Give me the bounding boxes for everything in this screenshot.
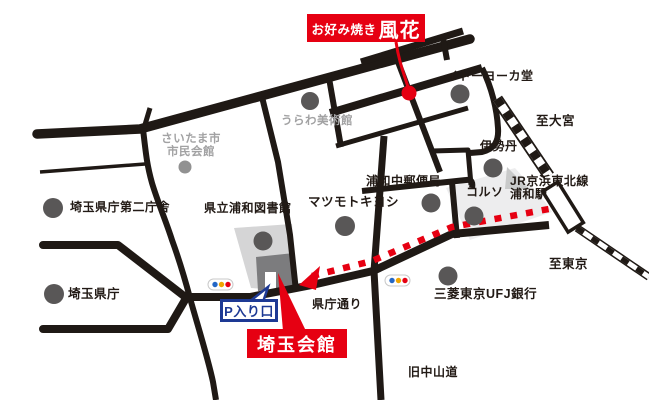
- label-to-omiya: 至大宮: [536, 114, 575, 128]
- shop-name: 風花: [379, 14, 421, 43]
- road-postoffice-north: [336, 108, 468, 146]
- post-office-dot: [422, 194, 441, 213]
- isetan-dot: [484, 159, 503, 178]
- road-yokado-stub: [443, 38, 447, 60]
- label-civic-hall: さいたま市 市民会館: [158, 133, 224, 159]
- access-map: さいたま市 市民会館 うらわ美術館 イトーヨーカ堂 伊勢丹 コルソ 浦和中郵便局…: [0, 0, 649, 400]
- road-thin-left: [40, 164, 145, 172]
- shop-name-prefix: お好み焼き: [311, 19, 376, 38]
- matsumoto-kiyoshi-dot: [335, 216, 355, 236]
- traffic-light-icon-east: [385, 275, 410, 286]
- corso-dot: [465, 207, 484, 226]
- jr-station-name: 浦和駅: [510, 187, 548, 201]
- label-ufj-bank: 三菱東京UFJ銀行: [434, 287, 537, 301]
- shop-location-dot: [402, 86, 417, 101]
- label-to-tokyo: 至東京: [549, 257, 588, 271]
- label-urawa-museum: うらわ美術館: [281, 115, 353, 128]
- urawa-museum-dot: [301, 92, 319, 110]
- label-matsumoto-kiyoshi: マツモトキヨシ: [308, 195, 399, 209]
- library-dot: [254, 232, 273, 251]
- label-kencho-dori: 県庁通り: [312, 298, 362, 311]
- road-left-lower: [43, 300, 185, 329]
- label-ito-yokado: イトーヨーカ堂: [446, 70, 534, 83]
- traffic-light-icon-west: [208, 279, 233, 290]
- pref-office-annex-dot: [43, 198, 63, 218]
- civic-hall-dot: [179, 161, 192, 174]
- label-pref-office: 埼玉県庁: [68, 287, 120, 301]
- jr-line-name: JR京浜東北線: [510, 174, 589, 188]
- civic-hall-line1: さいたま市: [161, 133, 221, 145]
- civic-hall-line2: 市民会館: [167, 146, 215, 158]
- destination-callout-box: 埼玉会館: [247, 329, 347, 358]
- ufj-bank-dot: [439, 267, 458, 286]
- label-central-post-office: 浦和中郵便局: [366, 175, 441, 188]
- pref-office-dot: [44, 284, 64, 304]
- shop-callout-box: お好み焼き 風花: [307, 14, 425, 42]
- label-prefectural-library: 県立浦和図書館: [204, 202, 292, 215]
- label-jr-station: JR京浜東北線 浦和駅: [510, 175, 589, 202]
- ito-yokado-dot: [451, 85, 470, 104]
- label-kyu-nakasendo: 旧中山道: [408, 366, 458, 379]
- parking-entrance-box: P入り口: [220, 299, 278, 322]
- label-corso: コルソ: [466, 186, 504, 199]
- label-isetan: 伊勢丹: [480, 140, 518, 153]
- label-pref-office-annex: 埼玉県庁第二庁舎: [70, 201, 170, 214]
